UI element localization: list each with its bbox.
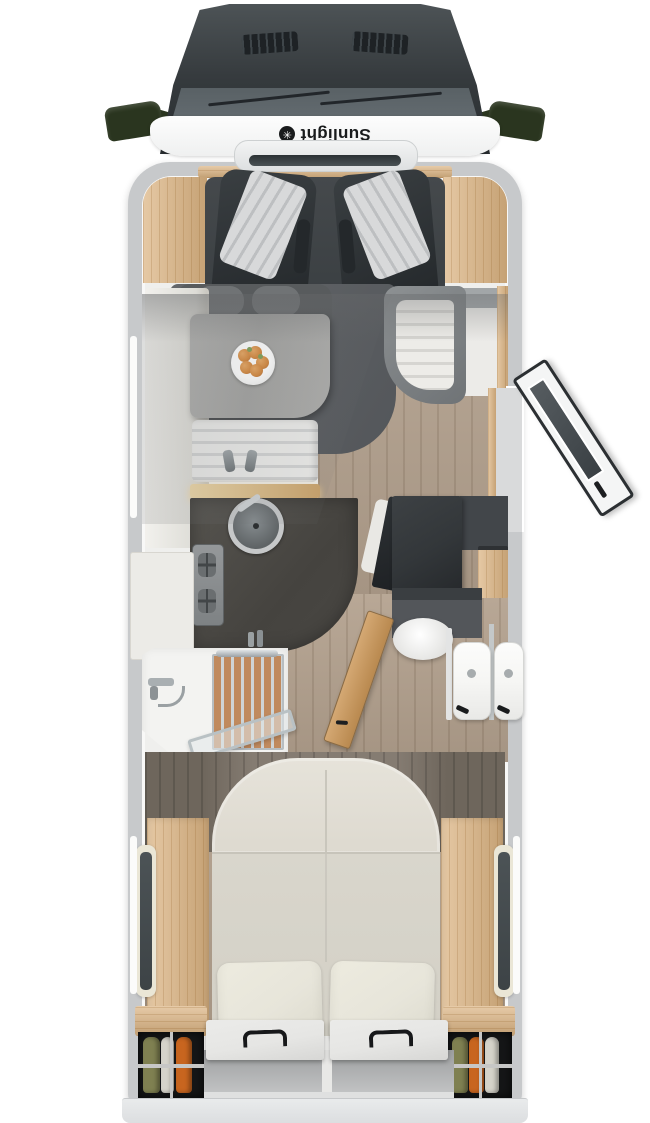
towel-bar-icon (216, 650, 278, 657)
fridge (130, 552, 194, 660)
toiletry-bottle-icon (257, 630, 263, 647)
flush-handle-icon (497, 704, 511, 714)
partition-wall (460, 496, 508, 550)
door-handle-icon (336, 720, 348, 725)
shower-knob-icon (150, 686, 158, 700)
wardrobe-shelf-frame (479, 1032, 482, 1098)
toilet-lid-icon (467, 669, 476, 678)
wall-window-slit (130, 336, 137, 518)
roof-cut-shadow (142, 294, 508, 342)
wall-window-slit (513, 836, 520, 994)
shower-faucet-icon (148, 678, 174, 686)
toilet (453, 642, 491, 720)
black-tv-wardrobe (392, 496, 462, 592)
door-handle-icon (593, 481, 607, 499)
burner-icon (198, 589, 216, 613)
hatch-handle-icon (243, 1029, 288, 1048)
toilet-mirror-reflection (494, 642, 524, 720)
wood-panel-front-left (143, 177, 207, 283)
hood-vent-right-icon (351, 31, 408, 55)
front-skylight (234, 140, 418, 172)
entry-door-open (512, 358, 635, 517)
door-window (527, 377, 605, 482)
bedroom-window-right (494, 845, 514, 997)
skylight-vent-slot (249, 155, 401, 166)
gas-hob (192, 544, 224, 626)
toiletry-bottle-icon (248, 632, 254, 647)
window-glass (498, 852, 510, 990)
mattress-seam (325, 770, 327, 854)
bedside-bench-left (147, 818, 209, 1032)
sunlight-motorhome-floorplan: Sunlight ✳ (0, 0, 650, 1123)
rear-bumper (122, 1098, 528, 1123)
wall-window-slit (130, 836, 137, 994)
burner-icon (198, 553, 216, 577)
toilet-lid-icon (504, 669, 513, 678)
wood-panel-front-right (443, 177, 507, 283)
vanity-top-edge (392, 588, 482, 600)
hood-vent-left-icon (241, 31, 298, 55)
hatch-handle-icon (369, 1029, 414, 1048)
window-glass (140, 852, 152, 990)
oak-side-cabinet (478, 546, 508, 598)
flush-handle-icon (456, 704, 470, 714)
duvet-crease (325, 854, 327, 962)
bedroom-window-left (136, 845, 156, 997)
partition-wall (446, 628, 452, 720)
wardrobe-shelf-frame (170, 1032, 173, 1098)
washbasin (393, 618, 453, 660)
